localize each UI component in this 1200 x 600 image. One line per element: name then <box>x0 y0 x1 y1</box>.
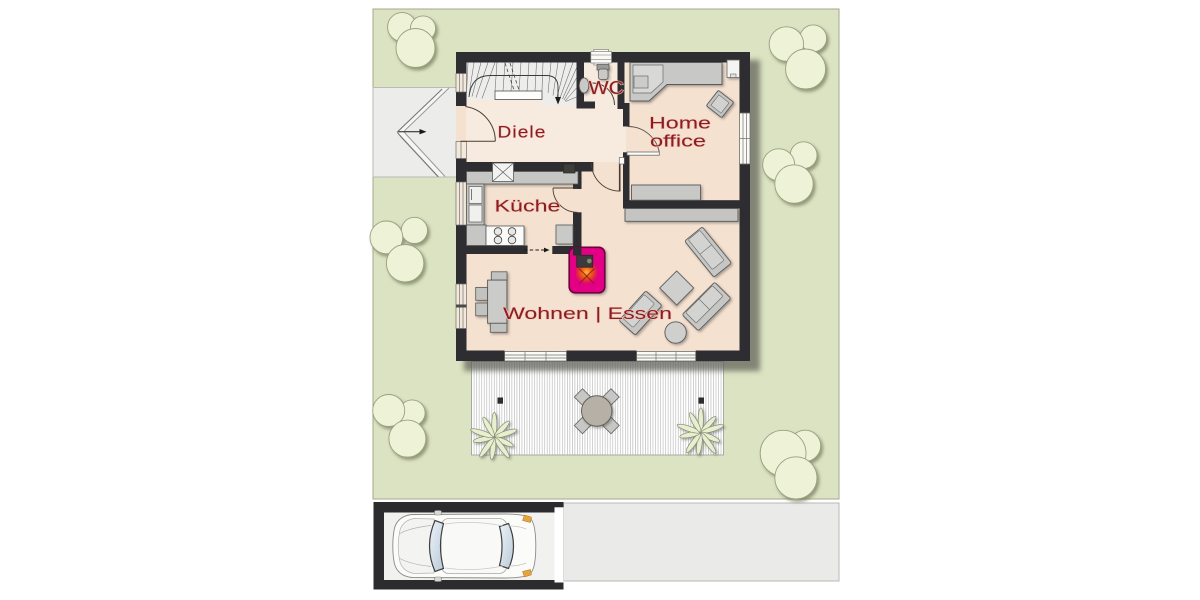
svg-text:WC: WC <box>589 78 625 98</box>
svg-text:Küche: Küche <box>495 197 561 216</box>
svg-text:office: office <box>650 132 706 151</box>
svg-text:Wohnen | Essen: Wohnen | Essen <box>503 304 672 323</box>
svg-text:Home: Home <box>649 114 711 133</box>
svg-text:Diele: Diele <box>498 123 547 142</box>
